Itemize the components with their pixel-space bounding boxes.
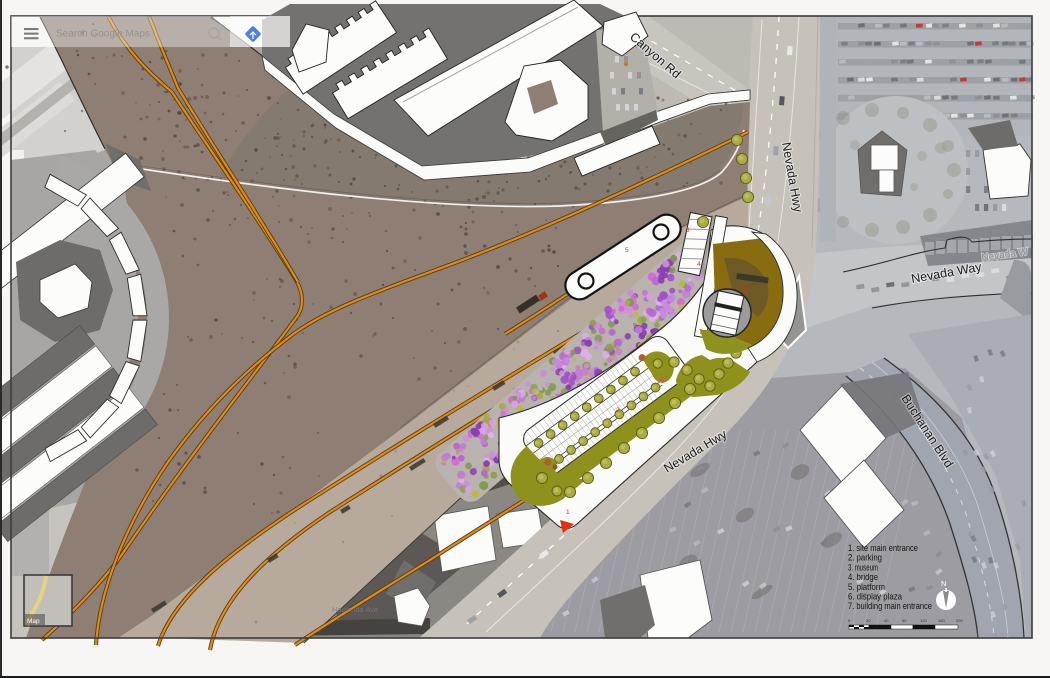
svg-text:200: 200 [956, 618, 963, 623]
svg-text:2: 2 [616, 407, 620, 414]
svg-text:1. site main entrance: 1. site main entrance [848, 543, 918, 553]
svg-text:6: 6 [744, 287, 748, 294]
svg-text:1: 1 [566, 509, 570, 516]
svg-text:4: 4 [697, 261, 701, 268]
svg-text:7: 7 [699, 329, 703, 336]
svg-text:Hacienda Ave: Hacienda Ave [332, 605, 378, 614]
svg-text:3: 3 [686, 227, 690, 234]
svg-text:160: 160 [938, 618, 945, 623]
svg-text:3. museum: 3. museum [848, 562, 878, 572]
svg-text:5. platform: 5. platform [848, 582, 885, 592]
svg-text:40: 40 [884, 618, 889, 623]
svg-text:4. bridge: 4. bridge [848, 572, 878, 582]
svg-text:Imagery ©2018 Google, Map data: Imagery ©2018 Google, Map data ©2018 Goo… [900, 631, 1010, 637]
svg-text:80: 80 [902, 618, 907, 623]
svg-text:N: N [941, 579, 946, 588]
svg-text:7. building main entrance: 7. building main entrance [848, 601, 932, 611]
svg-text:20: 20 [866, 618, 871, 623]
svg-text:Search Google Maps: Search Google Maps [56, 29, 150, 40]
svg-text:2. parking: 2. parking [848, 553, 882, 563]
svg-text:5: 5 [625, 247, 629, 254]
svg-text:6. display plaza: 6. display plaza [848, 592, 903, 602]
svg-text:120: 120 [920, 618, 927, 623]
svg-text:Map: Map [27, 618, 40, 625]
